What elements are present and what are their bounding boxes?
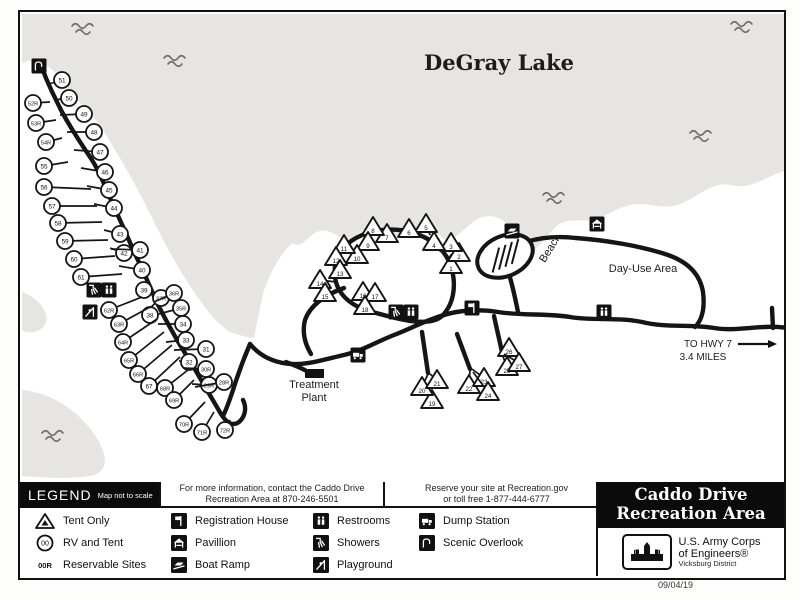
- svg-text:60: 60: [70, 256, 78, 263]
- svg-text:64R: 64R: [118, 340, 128, 346]
- legend-title: LEGEND: [28, 487, 92, 503]
- pavillion-icon: [170, 534, 188, 552]
- legend-item: Registration House: [170, 512, 289, 530]
- playground-icon: [312, 556, 330, 574]
- svg-text:63R: 63R: [114, 322, 124, 328]
- park-road: [457, 334, 470, 369]
- svg-text:38: 38: [146, 312, 154, 319]
- svg-text:41: 41: [136, 247, 144, 254]
- scenic-overlook-icon: [418, 534, 436, 552]
- campsite-rv: 52R: [25, 95, 50, 111]
- svg-text:21: 21: [434, 381, 441, 388]
- agency-district: Vicksburg District: [679, 560, 761, 568]
- svg-text:68R: 68R: [160, 386, 170, 392]
- legend-item-label: Registration House: [195, 515, 289, 527]
- svg-text:18: 18: [362, 307, 369, 314]
- legend-item-label: Scenic Overlook: [443, 537, 523, 549]
- campsite-rv: 44: [94, 200, 122, 216]
- svg-text:19: 19: [429, 401, 436, 408]
- svg-text:13: 13: [337, 271, 344, 278]
- campsite-rv: 60: [66, 251, 115, 267]
- registration-house-icon: [465, 301, 480, 316]
- svg-text:55: 55: [40, 163, 48, 170]
- svg-text:46: 46: [101, 169, 109, 176]
- svg-text:49: 49: [80, 111, 88, 118]
- svg-text:6: 6: [407, 230, 411, 237]
- registration-house-icon: [170, 512, 188, 530]
- legend-item: Dump Station: [418, 512, 510, 530]
- map-label: 3.4 MILES: [680, 352, 727, 363]
- reserve-box: Reserve your site at Recreation.gov or t…: [385, 482, 610, 508]
- svg-text:57: 57: [48, 203, 56, 210]
- campsite-tent: 23: [472, 368, 495, 386]
- boat-ramp-icon: [170, 556, 188, 574]
- svg-text:69R: 69R: [169, 398, 179, 404]
- campsite-rv: 57: [44, 198, 97, 214]
- legend-item: Scenic Overlook: [418, 534, 523, 552]
- svg-text:3: 3: [449, 244, 453, 251]
- contact-line2: Recreation Area at 870-246-5501: [161, 494, 383, 505]
- park-road: [772, 308, 773, 328]
- svg-text:65R: 65R: [124, 358, 134, 364]
- svg-text:4: 4: [432, 243, 436, 250]
- contact-box: For more information, contact the Caddo …: [159, 482, 385, 508]
- hwy-arrow-head: [768, 340, 777, 348]
- svg-text:40: 40: [138, 267, 146, 274]
- campsite-rv: 51: [49, 72, 70, 88]
- park-title-box: Caddo Drive Recreation Area: [598, 482, 784, 528]
- svg-text:20: 20: [419, 388, 426, 395]
- svg-text:33: 33: [182, 337, 190, 344]
- restrooms-icon: [102, 283, 117, 298]
- park-road: [494, 316, 502, 352]
- svg-text:44: 44: [110, 205, 118, 212]
- campsite-rv: 42: [110, 245, 132, 261]
- legend-item-label: Showers: [337, 537, 380, 549]
- svg-text:30R: 30R: [201, 367, 211, 373]
- scenic-overlook-icon: [419, 535, 435, 551]
- agency-line1: U.S. Army Corps: [679, 536, 761, 548]
- svg-text:51: 51: [58, 77, 66, 84]
- svg-text:39: 39: [140, 287, 148, 294]
- dump-station-icon: [351, 348, 366, 363]
- dump-station-icon: [419, 513, 435, 529]
- svg-text:9: 9: [366, 243, 370, 250]
- reserve-line1: Reserve your site at Recreation.gov: [385, 483, 608, 494]
- campsite-rv: 40: [119, 262, 150, 278]
- svg-text:22: 22: [466, 386, 473, 393]
- legend-item: Boat Ramp: [170, 556, 250, 574]
- legend-item-label: Boat Ramp: [195, 559, 250, 571]
- agency-text: U.S. Army Corps of Engineers® Vicksburg …: [679, 536, 761, 568]
- restrooms-icon: [313, 513, 329, 529]
- pavillion-icon: [171, 535, 187, 551]
- map-label: Plant: [301, 392, 326, 404]
- svg-text:2: 2: [457, 254, 461, 261]
- svg-text:32: 32: [185, 359, 193, 366]
- map-label: Day-Use Area: [609, 263, 678, 275]
- legend-scale-note: Map not to scale: [98, 491, 153, 500]
- svg-text:66R: 66R: [133, 372, 143, 378]
- svg-text:52R: 52R: [28, 101, 38, 107]
- map-label: Treatment: [289, 379, 339, 391]
- svg-text:36R: 36R: [169, 291, 179, 297]
- svg-text:00R: 00R: [38, 561, 52, 570]
- legend-item-label: Playground: [337, 559, 393, 571]
- map-frame: 515049484746454443424140393837R36R35R343…: [18, 10, 786, 580]
- campsite-rv: 58: [50, 215, 102, 231]
- restrooms-icon: [404, 305, 419, 320]
- svg-text:62R: 62R: [104, 308, 114, 314]
- restrooms-icon: [597, 305, 612, 320]
- svg-text:34: 34: [179, 321, 187, 328]
- svg-text:15: 15: [322, 294, 329, 301]
- park-title-line2: Recreation Area: [598, 504, 784, 523]
- svg-text:50: 50: [65, 95, 73, 102]
- legend-item: 00RV and Tent: [34, 534, 123, 552]
- registration-house-icon: [171, 513, 187, 529]
- svg-text:54R: 54R: [41, 140, 51, 146]
- dump-station-icon: [418, 512, 436, 530]
- boat-ramp-icon: [505, 224, 520, 239]
- svg-text:67: 67: [145, 383, 153, 390]
- svg-text:10: 10: [354, 256, 361, 263]
- svg-text:1: 1: [449, 266, 453, 273]
- playground-icon: [83, 305, 98, 320]
- campsite-rv: 55: [36, 158, 68, 174]
- svg-text:71R: 71R: [197, 430, 207, 436]
- svg-text:43: 43: [116, 231, 124, 238]
- legend-item: Restrooms: [312, 512, 390, 530]
- park-title-line1: Caddo Drive: [598, 485, 784, 504]
- treatment-plant-building: [305, 369, 324, 378]
- map-label: DeGray Lake: [424, 50, 574, 75]
- svg-text:59: 59: [61, 238, 69, 245]
- svg-text:72R: 72R: [220, 428, 230, 434]
- legend-item: 00RReservable Sites: [34, 556, 146, 574]
- playground-icon: [313, 557, 329, 573]
- svg-text:58: 58: [54, 220, 62, 227]
- title-block: Caddo Drive Recreation Area U.S. Army Co…: [596, 482, 784, 576]
- park-road: [576, 238, 704, 327]
- showers-icon: [389, 305, 404, 320]
- contact-line1: For more information, contact the Caddo …: [161, 483, 383, 494]
- screenshot-root: 515049484746454443424140393837R36R35R343…: [0, 0, 800, 600]
- lake-west-cove: [22, 292, 47, 332]
- park-map: 515049484746454443424140393837R36R35R343…: [20, 12, 784, 482]
- usace-castle-logo: [622, 534, 672, 570]
- rv-legend-icon: 00: [34, 534, 56, 552]
- svg-text:42: 42: [120, 250, 128, 257]
- legend-item-label: Dump Station: [443, 515, 510, 527]
- legend-item-label: RV and Tent: [63, 537, 123, 549]
- reservable-legend-icon: 00R: [34, 556, 56, 574]
- showers-icon: [87, 283, 102, 298]
- legend-item: Playground: [312, 556, 393, 574]
- park-road: [509, 274, 518, 312]
- legend-strip: LEGEND Map not to scale For more informa…: [20, 482, 610, 508]
- restrooms-icon: [312, 512, 330, 530]
- legend-item-label: Pavillion: [195, 537, 236, 549]
- campsite-rv: 53R: [28, 115, 56, 131]
- showers-icon: [312, 534, 330, 552]
- svg-text:5: 5: [424, 225, 428, 232]
- svg-text:11: 11: [341, 246, 348, 253]
- svg-text:00: 00: [41, 541, 49, 548]
- svg-text:48: 48: [90, 129, 98, 136]
- legend-item-label: Tent Only: [63, 515, 109, 527]
- svg-text:8: 8: [371, 228, 375, 235]
- legend-header: LEGEND Map not to scale: [20, 482, 159, 508]
- agency-block: U.S. Army Corps of Engineers® Vicksburg …: [598, 528, 784, 576]
- legend-item: Tent Only: [34, 512, 109, 530]
- campsite-rv: 54R: [38, 134, 62, 150]
- campsite-rv: 59: [57, 233, 108, 249]
- lake-southwest-cove: [22, 390, 105, 478]
- svg-text:70R: 70R: [179, 422, 189, 428]
- tent-legend-icon: [34, 512, 56, 530]
- svg-text:27: 27: [516, 364, 523, 371]
- svg-text:17: 17: [372, 294, 379, 301]
- scenic-overlook-icon: [32, 59, 47, 74]
- svg-text:35R: 35R: [176, 306, 186, 312]
- campsite-rv: 39: [136, 282, 152, 298]
- campsite-rv: 56: [36, 179, 91, 195]
- legend-item: Showers: [312, 534, 380, 552]
- boat-ramp-icon: [171, 557, 187, 573]
- svg-text:53R: 53R: [31, 121, 41, 127]
- campsite-rv: 71R: [194, 412, 214, 440]
- legend-item-label: Restrooms: [337, 515, 390, 527]
- showers-icon: [313, 535, 329, 551]
- svg-text:24: 24: [485, 393, 492, 400]
- pavillion-icon: [590, 217, 605, 232]
- legend-item-label: Reservable Sites: [63, 559, 146, 571]
- legend-item: Pavillion: [170, 534, 236, 552]
- svg-text:45: 45: [105, 187, 113, 194]
- park-road: [422, 332, 428, 373]
- svg-text:47: 47: [96, 149, 104, 156]
- date-stamp: 09/04/19: [658, 580, 693, 590]
- svg-text:28R: 28R: [219, 380, 229, 386]
- map-label: TO HWY 7: [684, 339, 732, 350]
- reserve-line2: or toll free 1-877-444-6777: [385, 494, 608, 505]
- svg-text:7: 7: [385, 235, 389, 242]
- legend-items: Tent Only00RV and Tent00RReservable Site…: [20, 508, 598, 576]
- svg-text:56: 56: [40, 184, 48, 191]
- svg-text:31: 31: [202, 346, 210, 353]
- svg-text:61: 61: [77, 274, 85, 281]
